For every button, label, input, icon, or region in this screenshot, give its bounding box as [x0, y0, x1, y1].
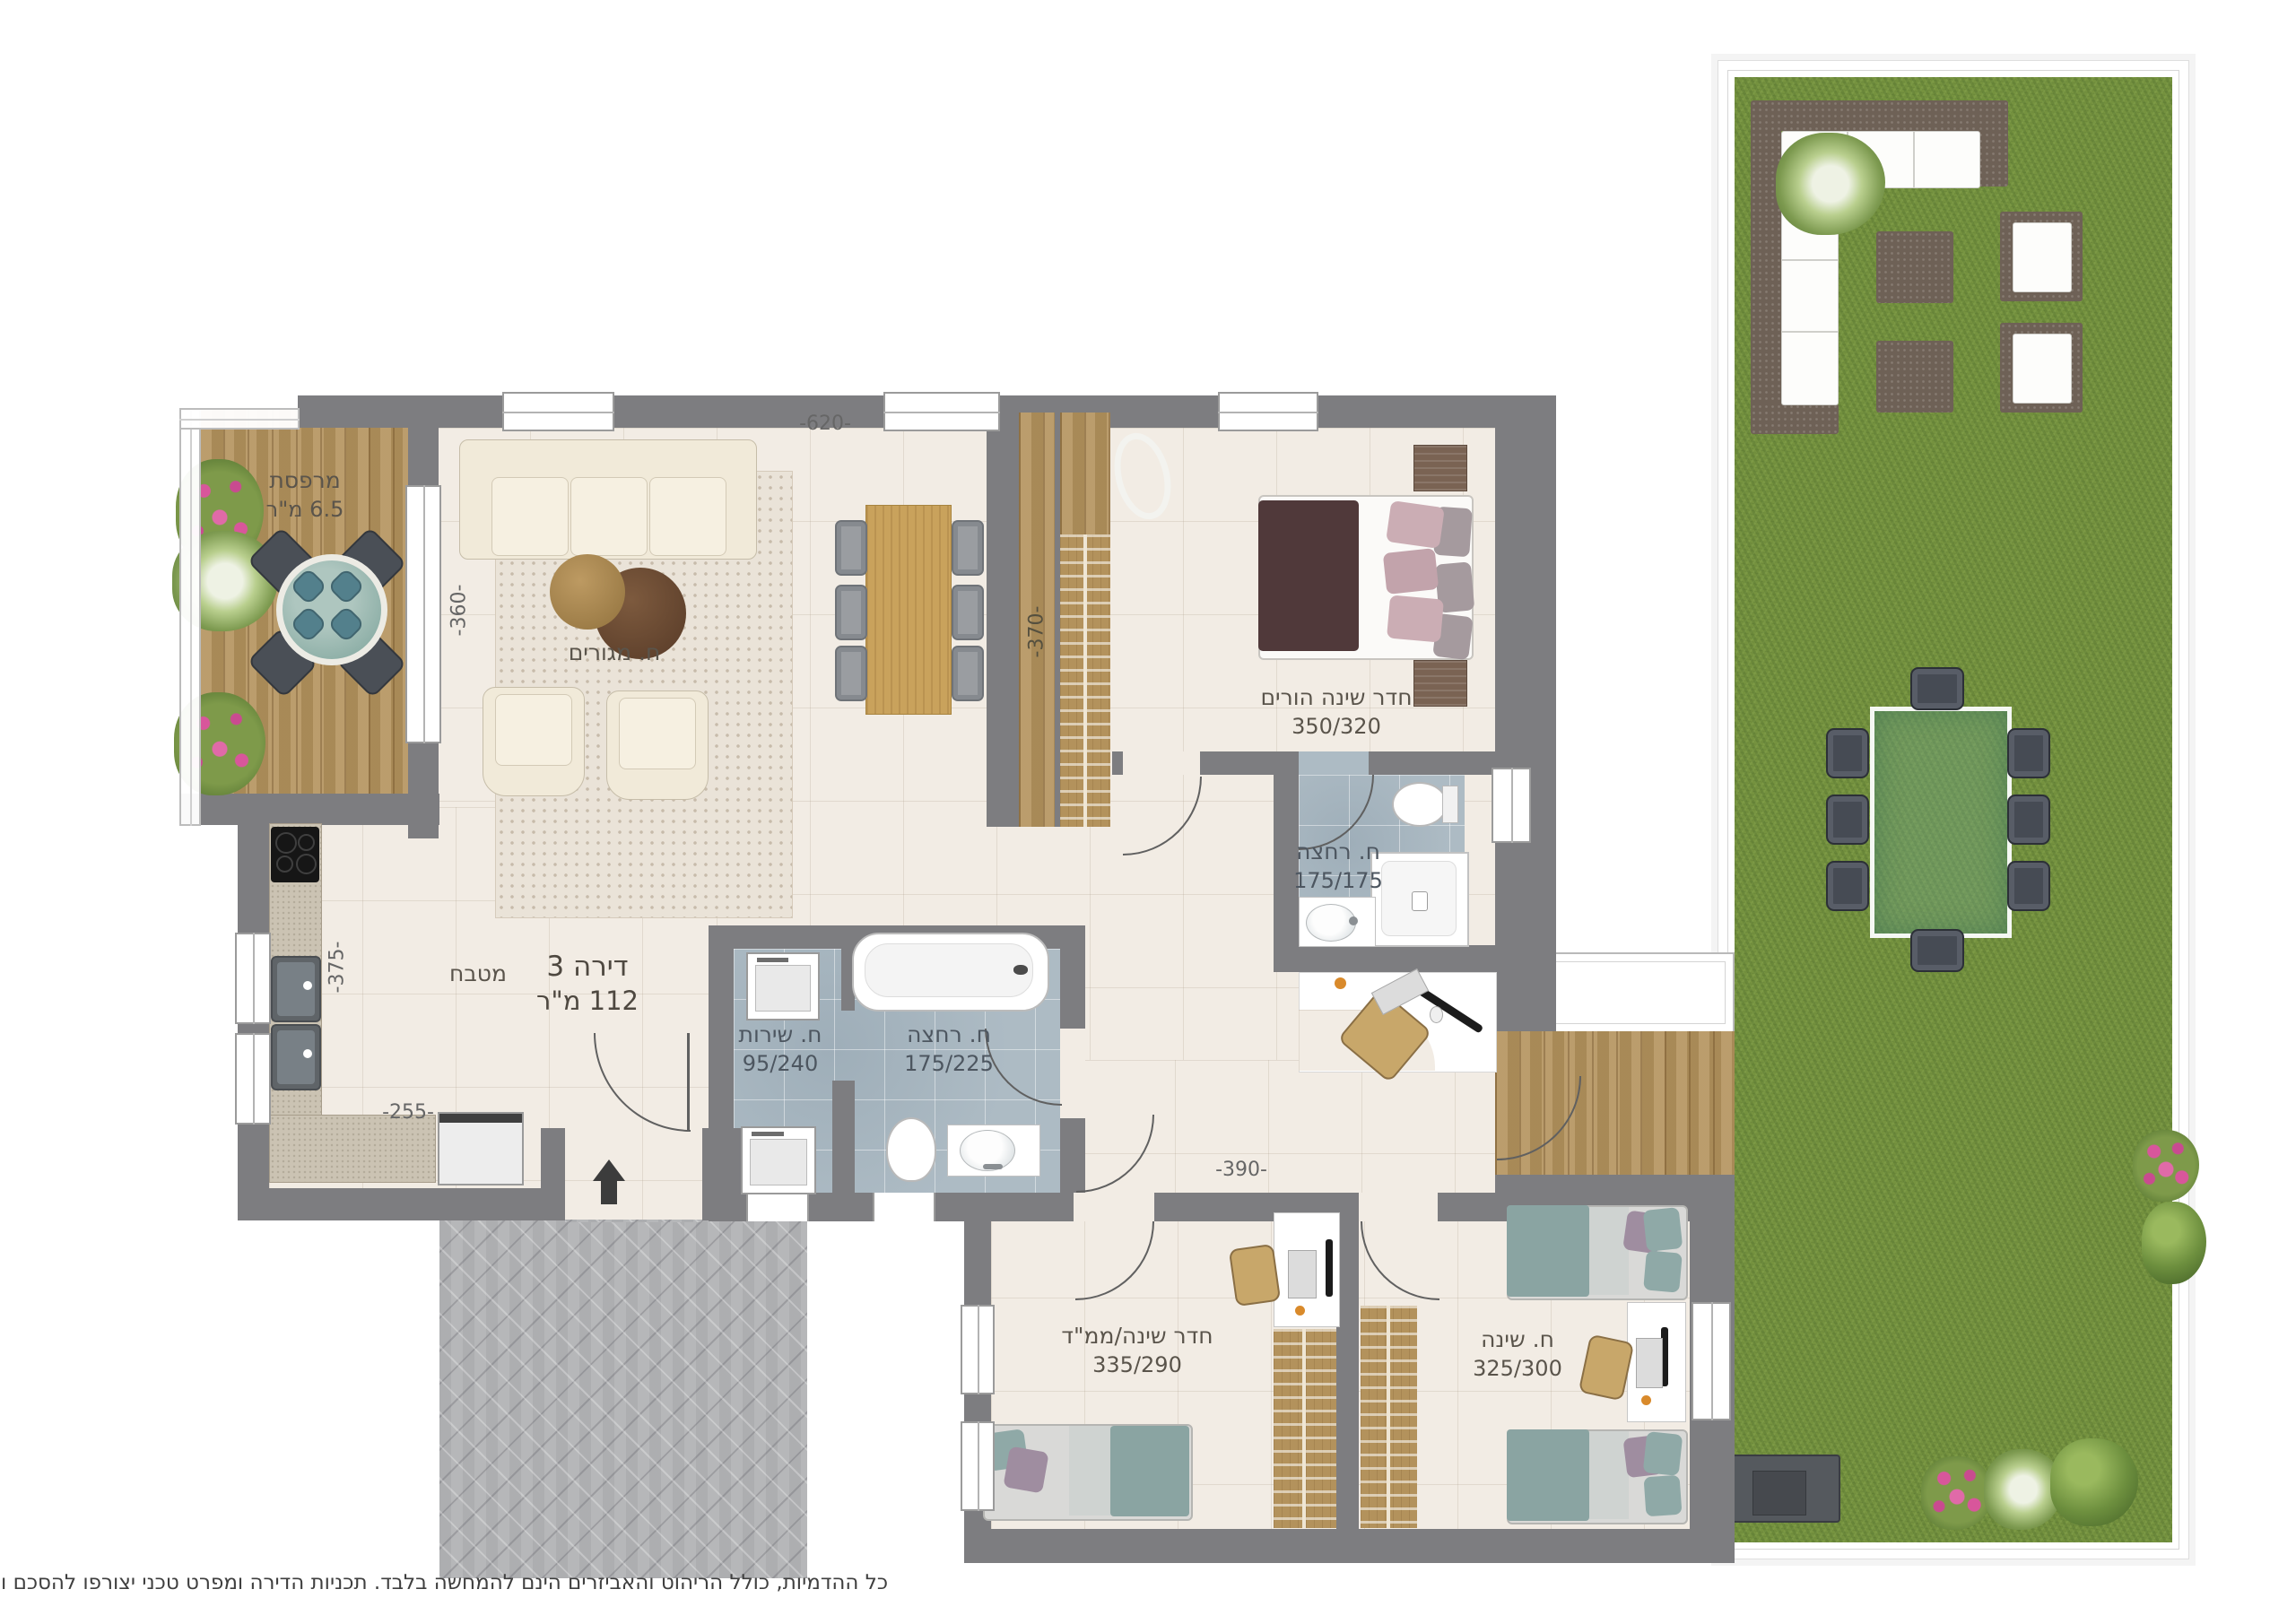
closet-top: [1060, 413, 1110, 534]
wall: [541, 1128, 565, 1220]
dining-chair: [835, 520, 867, 576]
toilet-tank: [1442, 786, 1458, 823]
room-label-balcony: מרפסת 6.5 מ"ר: [233, 466, 377, 524]
nightstand: [1413, 445, 1467, 491]
bed-sheet: [1069, 1426, 1112, 1515]
wall: [964, 1529, 1735, 1563]
palm-plant: [1891, 127, 2045, 260]
dim-living-depth: -360-: [448, 566, 471, 656]
dryer: [741, 1126, 816, 1194]
garden-dining-table: [1870, 707, 2012, 938]
toilet: [1392, 782, 1448, 827]
door-opening: [1299, 751, 1369, 775]
keyboard: [1288, 1250, 1317, 1298]
wall: [179, 794, 439, 825]
window: [883, 392, 1000, 431]
garden-chair: [2007, 795, 2050, 845]
washing-machine: [746, 952, 820, 1020]
room-dims: 325/300: [1455, 1355, 1580, 1383]
master-blanket: [1258, 500, 1359, 651]
armchair-cushion: [619, 698, 696, 769]
pillow: [1383, 548, 1439, 595]
desk-chair: [1229, 1244, 1281, 1307]
nightstand: [1413, 660, 1467, 707]
door-opening: [1074, 1193, 1154, 1221]
palm-plant: [2029, 39, 2174, 174]
mouse: [1430, 1006, 1443, 1023]
cooktop: [271, 827, 319, 882]
dining-chair: [952, 520, 984, 576]
dining-chair: [835, 646, 867, 701]
garden-chair: [1826, 728, 1869, 778]
disclaimer-text: כל ההדמיות, כולל הריהוט והאביזרים הינם ל…: [25, 1571, 888, 1594]
room-area: 6.5 מ"ר: [233, 496, 377, 524]
room-label-bathroom: ח. רחצה 175/225: [888, 1020, 1010, 1078]
dim-kitchen-width: -255-: [359, 1101, 457, 1124]
room-name: חדר שינה הורים: [1256, 683, 1417, 713]
dim-living-width: -620-: [771, 413, 879, 435]
door-opening: [1359, 1193, 1438, 1221]
pillow: [1386, 500, 1445, 549]
room-label-living: ח. מגורים: [547, 638, 682, 668]
closet-rod: [1083, 534, 1087, 827]
door-opening: [1123, 751, 1200, 775]
garden-sofa-frame: [1751, 100, 1781, 434]
dining-table: [865, 505, 952, 715]
balcony-table: [276, 554, 387, 665]
green-bush: [2142, 1202, 2206, 1284]
room-dims: 350/320: [1256, 713, 1417, 741]
window: [235, 1033, 271, 1125]
floor-plan-canvas: מרפסת 6.5 מ"ר ח. מגורים מטבח דירה 3 112 …: [0, 0, 2296, 1624]
door-opening: [1060, 1029, 1085, 1118]
coffee-table-light: [550, 554, 625, 630]
room-label-master: חדר שינה הורים 350/320: [1256, 683, 1417, 741]
pillow: [1643, 1431, 1683, 1476]
door-threshold: [746, 1193, 809, 1221]
garden-sofa-frame: [1751, 404, 1839, 434]
entry-arrow-icon: [593, 1159, 625, 1181]
dim-corridor-width: -390-: [1189, 1159, 1293, 1181]
garden-chair: [2007, 861, 2050, 911]
closet-rod: [1387, 1306, 1390, 1528]
kitchen-sink: [271, 956, 321, 1022]
room-label-bedroom2: ח. שינה 325/300: [1455, 1325, 1580, 1383]
bbq-grill: [1731, 1455, 1840, 1523]
wall: [987, 413, 1019, 827]
closet-rod: [1302, 1329, 1306, 1528]
window: [1218, 392, 1318, 431]
pillow: [1643, 1250, 1683, 1292]
room-dims: 175/225: [888, 1050, 1010, 1078]
table-cushion: [327, 568, 365, 605]
dim-kitchen-depth: -375-: [326, 923, 349, 1012]
room-label-ensuite: ח. רחצה 175/175: [1283, 838, 1394, 895]
balcony-glass-railing: [179, 408, 201, 826]
window: [1492, 768, 1531, 843]
bed-sheet: [1589, 1207, 1629, 1295]
wall: [238, 1188, 547, 1220]
garden-chair: [2007, 728, 2050, 778]
desk-accessory: [1295, 1306, 1305, 1316]
dim-hall-depth: -370-: [1026, 587, 1048, 677]
wall: [408, 428, 439, 485]
pillow: [1003, 1446, 1048, 1494]
palm-plant: [2068, 1359, 2196, 1469]
room-label-saferoom: חדר שינה/ממ"ד 335/290: [1048, 1322, 1227, 1379]
door-threshold: [873, 1193, 935, 1221]
pillow: [1644, 1475, 1683, 1517]
room-dims: 175/175: [1283, 867, 1394, 895]
toilet: [886, 1117, 936, 1182]
entry-path: [439, 1220, 807, 1578]
garden-ottoman: [1876, 341, 1953, 413]
keyboard: [1636, 1338, 1663, 1388]
pink-flowers: [2133, 1130, 2199, 1202]
pillow: [1387, 595, 1444, 642]
apartment-area: 112 מ"ר: [511, 985, 664, 1019]
room-label-service: ח. שירות 95/240: [728, 1020, 832, 1078]
window: [961, 1305, 995, 1394]
room-name: ח. מגורים: [547, 638, 682, 668]
wall: [1495, 395, 1556, 1031]
table-cushion: [290, 568, 327, 605]
desk-accessory: [1335, 977, 1346, 989]
garden-chair: [1826, 795, 1869, 845]
pillow: [1643, 1207, 1683, 1252]
palm-plant: [2059, 170, 2158, 260]
bathtub: [852, 933, 1049, 1012]
garden-chair: [1910, 667, 1964, 710]
room-name: מרפסת: [233, 466, 377, 496]
wall: [1060, 925, 1085, 1029]
table-cushion: [327, 605, 365, 643]
garden-chair: [1826, 861, 1869, 911]
room-name: ח. שינה: [1455, 1325, 1580, 1355]
room-dims: 335/290: [1048, 1351, 1227, 1379]
room-name: חדר שינה/ממ"ד: [1048, 1322, 1227, 1351]
garden-sofa-frame: [1751, 100, 2008, 131]
desk-accessory: [1641, 1395, 1651, 1405]
balcony-glass-railing: [179, 408, 300, 430]
room-dims: 95/240: [728, 1050, 832, 1078]
garden-chair: [1910, 929, 1964, 972]
faucet: [983, 1164, 1003, 1169]
bed-blanket: [1507, 1205, 1589, 1297]
balcony-sliding-door: [405, 485, 441, 743]
room-name: ח. רחצה: [1283, 838, 1394, 867]
faucet: [1349, 916, 1358, 925]
apartment-name: דירה 3: [511, 949, 664, 985]
bed-blanket: [1507, 1429, 1589, 1521]
armchair-cushion: [495, 694, 572, 766]
kitchen-sink: [271, 1024, 321, 1090]
garden-armchair-cushion: [2013, 334, 2072, 404]
entry-arrow-stem: [601, 1179, 617, 1204]
dining-chair: [952, 585, 984, 640]
apartment-title: דירה 3 112 מ"ר: [511, 949, 664, 1019]
dining-chair: [952, 646, 984, 701]
room-name: ח. שירות: [728, 1020, 832, 1050]
window: [502, 392, 614, 431]
window: [235, 933, 271, 1024]
table-cushion: [290, 605, 327, 643]
wall: [1274, 945, 1495, 972]
bbq-door: [1752, 1471, 1806, 1515]
dining-chair: [835, 585, 867, 640]
window: [1692, 1302, 1731, 1420]
kitchen-counter: [269, 1115, 436, 1183]
bed-blanket: [1110, 1426, 1189, 1516]
room-name: ח. רחצה: [888, 1020, 1010, 1050]
computer-monitor: [1326, 1239, 1333, 1297]
entry-door-leaf: [687, 1033, 690, 1132]
wall: [832, 1081, 855, 1196]
window: [961, 1421, 995, 1511]
